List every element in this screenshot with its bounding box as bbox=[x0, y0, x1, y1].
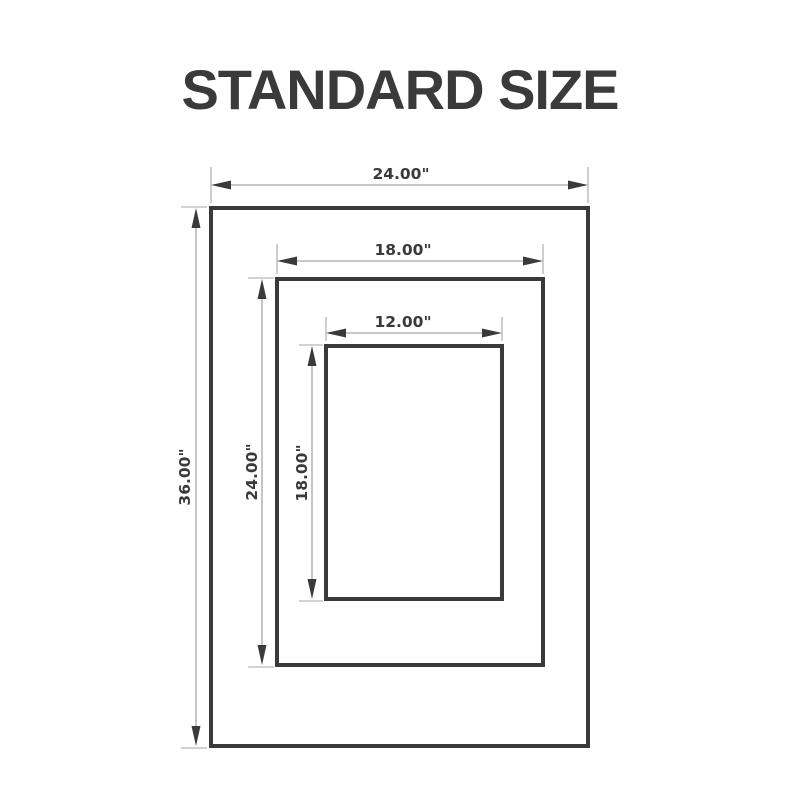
arrowhead-left-icon bbox=[326, 329, 346, 338]
inner-height-label: 18.00" bbox=[293, 444, 311, 501]
arrowhead-right-icon bbox=[482, 329, 502, 338]
inner-width-dimension: 12.00" bbox=[326, 313, 502, 341]
outer-width-dimension: 24.00" bbox=[211, 165, 588, 203]
arrowhead-up-icon bbox=[192, 208, 201, 228]
arrowhead-left-icon bbox=[277, 257, 297, 266]
inner-frame bbox=[326, 346, 502, 599]
arrowhead-left-icon bbox=[211, 181, 231, 190]
middle-height-label: 24.00" bbox=[243, 443, 261, 500]
arrowhead-right-icon bbox=[568, 181, 588, 190]
diagram-canvas: STANDARD SIZE 24.00" 18.00" bbox=[0, 0, 800, 800]
inner-width-label: 12.00" bbox=[374, 313, 431, 331]
arrowhead-down-icon bbox=[192, 726, 201, 746]
outer-height-dimension: 36.00" bbox=[176, 207, 207, 748]
standard-size-diagram: STANDARD SIZE 24.00" 18.00" bbox=[0, 0, 800, 800]
arrowhead-down-icon bbox=[258, 645, 267, 665]
middle-width-label: 18.00" bbox=[374, 241, 431, 259]
page-title: STANDARD SIZE bbox=[181, 58, 618, 121]
arrowhead-down-icon bbox=[308, 579, 317, 599]
arrowhead-up-icon bbox=[308, 346, 317, 366]
inner-height-dimension: 18.00" bbox=[293, 345, 323, 601]
middle-height-dimension: 24.00" bbox=[243, 278, 274, 667]
arrowhead-up-icon bbox=[258, 279, 267, 299]
outer-height-label: 36.00" bbox=[176, 448, 194, 505]
arrowhead-right-icon bbox=[523, 257, 543, 266]
middle-width-dimension: 18.00" bbox=[277, 241, 543, 274]
outer-width-label: 24.00" bbox=[372, 165, 429, 183]
